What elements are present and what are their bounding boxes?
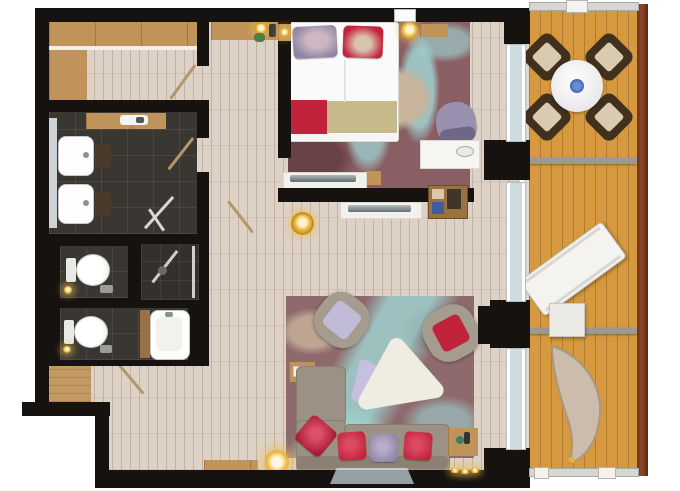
- vanity-faucet: [136, 117, 144, 123]
- shower-floor: [141, 244, 199, 300]
- wall-right-top: [504, 8, 530, 44]
- phone: [269, 24, 276, 37]
- rail-post: [566, 0, 588, 13]
- chair-cushion: [531, 101, 562, 132]
- towel: [100, 345, 112, 353]
- tub-shelf: [140, 310, 150, 358]
- stool: [95, 192, 111, 216]
- sink-faucet: [83, 200, 89, 206]
- balcony-railing: [637, 4, 648, 476]
- wall-right-mid: [484, 140, 530, 180]
- hanging-chair: [530, 340, 618, 466]
- sink-faucet: [83, 152, 89, 158]
- shower-glass: [192, 246, 195, 298]
- toiletry-bottle: [63, 346, 71, 353]
- bedside-lamp: [280, 28, 289, 37]
- fruit-bowl: [570, 79, 584, 93]
- rail-post: [598, 467, 616, 479]
- wall-pillar-stub: [478, 306, 492, 344]
- decor-bottle: [464, 432, 470, 444]
- balcony-divider: [529, 158, 637, 164]
- wardrobe-front-edge: [49, 46, 197, 50]
- sofa-pillow-red: [337, 431, 367, 461]
- minibar-item: [432, 202, 444, 214]
- bathtub: [150, 310, 190, 360]
- bathroom-mirror: [49, 118, 57, 228]
- wood-box: [366, 171, 381, 185]
- closet-niche: [49, 366, 91, 402]
- living-tv: [348, 205, 411, 212]
- towel: [100, 285, 113, 293]
- toilet-tank: [64, 320, 74, 344]
- bed-runner-red: [289, 100, 327, 134]
- bedroom-balcony-door: [506, 44, 526, 142]
- slipper: [451, 468, 459, 473]
- coffee-table: [348, 331, 448, 422]
- floor-plan: [0, 0, 680, 491]
- chair-cushion: [593, 41, 624, 72]
- minibar-item: [447, 189, 461, 209]
- sink: [58, 184, 94, 224]
- decor-plant: [456, 436, 464, 444]
- bed-runner-olive: [327, 101, 397, 133]
- armchair-cushion: [321, 299, 363, 341]
- plant: [254, 33, 265, 42]
- bathtub-basin: [156, 317, 182, 351]
- desk-lamp: [456, 146, 474, 157]
- side-table-right: [448, 428, 478, 456]
- bedroom-wall-shelf: [420, 24, 448, 37]
- media-lamp: [291, 212, 314, 235]
- bathtub-faucet: [165, 312, 173, 317]
- shelf-lamp: [401, 22, 418, 39]
- slipper: [461, 469, 469, 474]
- toilet-tank: [66, 258, 76, 282]
- deck-table: [549, 303, 585, 337]
- stool: [95, 144, 111, 168]
- wall-right-bottom: [484, 448, 530, 478]
- sink: [58, 136, 94, 176]
- wall-bath-top: [35, 100, 209, 112]
- wardrobe-top: [49, 22, 197, 48]
- sofa-left-arm: [296, 366, 346, 426]
- shower-drain: [158, 266, 167, 275]
- slipper: [471, 468, 479, 473]
- wardrobe-left: [49, 48, 87, 102]
- duvet-seam: [344, 60, 346, 102]
- toilet: [76, 254, 110, 286]
- sofa-pillow-purple: [370, 434, 398, 462]
- bed-pillow-purple: [292, 25, 338, 59]
- wall-hall-divider: [197, 8, 209, 66]
- wall-right-pillar: [490, 300, 530, 348]
- minibar-shelf: [428, 185, 468, 219]
- bedroom-window: [394, 9, 416, 22]
- toiletry-bottle: [64, 286, 72, 294]
- minibar-item: [432, 189, 444, 199]
- living-balcony-door: [506, 182, 526, 302]
- chair-cushion: [593, 101, 624, 132]
- rail-post: [534, 467, 549, 479]
- bed-pillow-red: [342, 25, 383, 58]
- bedroom-tv: [290, 175, 356, 182]
- wall-bath-right-a: [197, 112, 209, 138]
- sofa-pillow-red: [403, 431, 433, 461]
- bed-footboard: [289, 134, 397, 140]
- toilet: [74, 316, 108, 348]
- gold-tray: [254, 24, 268, 33]
- wall-tv: [330, 468, 414, 484]
- outside-mask: [0, 416, 95, 491]
- living-balcony-door: [506, 348, 526, 450]
